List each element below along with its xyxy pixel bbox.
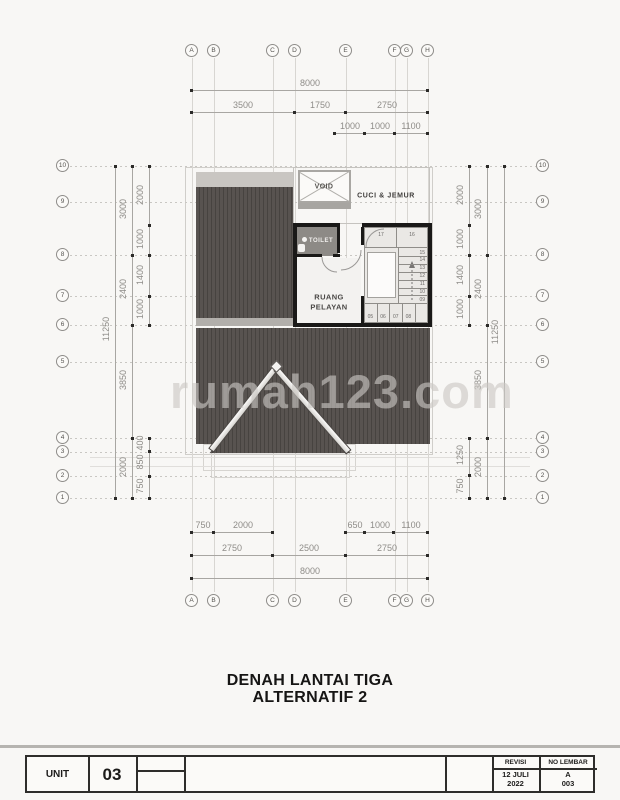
grid-bubble-top-B: B <box>207 44 220 57</box>
dim-label: 1100 <box>401 520 420 530</box>
dim-tick <box>486 254 489 257</box>
drawing-title-line2: ALTERNATIF 2 <box>0 689 620 706</box>
dim-tick <box>486 324 489 327</box>
dim-line <box>346 532 428 533</box>
grid-bubble-right-3: 3 <box>536 445 549 458</box>
dim-tick <box>468 324 471 327</box>
void-edge-strip <box>298 203 351 209</box>
dim-line <box>192 90 428 91</box>
room-label-toilet: TOILET <box>309 238 333 244</box>
dim-label: 8000 <box>300 78 320 88</box>
dim-label: 8000 <box>300 566 320 576</box>
grid-bubble-top-D: D <box>288 44 301 57</box>
room-label-void: VOID <box>315 184 334 191</box>
dim-label: 2500 <box>299 543 319 553</box>
dim-label: 1000 <box>455 287 465 331</box>
dim-label: 2750 <box>377 100 397 110</box>
stair-step-number: 09 <box>405 297 425 303</box>
dim-label: 1000 <box>370 121 390 131</box>
toilet-sink-icon <box>302 237 307 242</box>
dim-label: 2000 <box>135 173 145 217</box>
dim-line <box>335 133 428 134</box>
title-block: UNIT 03 REVISI 12 JULI 2022 NO LEMBAR A … <box>25 755 595 793</box>
dim-label: 3000 <box>118 187 128 231</box>
no-lembar-label: NO LEMBAR <box>539 759 597 766</box>
grid-bubble-left-4: 4 <box>56 431 69 444</box>
sheet-divider-rule <box>0 745 620 748</box>
grid-bubble-left-10: 10 <box>56 159 69 172</box>
dim-tick <box>271 531 274 534</box>
grid-bubble-bottom-G: G <box>400 594 413 607</box>
grid-bubble-bottom-A: A <box>185 594 198 607</box>
dim-label: 2000 <box>118 445 128 489</box>
dim-label: 650 <box>347 520 362 530</box>
grid-bubble-right-6: 6 <box>536 318 549 331</box>
dim-tick <box>148 475 151 478</box>
grid-bubble-bottom-H: H <box>421 594 434 607</box>
dim-tick <box>131 497 134 500</box>
dim-tick <box>486 497 489 500</box>
stair-line <box>365 247 427 248</box>
room-label-ruang-pelayan: PELAYAN <box>310 303 347 312</box>
grid-bubble-left-5: 5 <box>56 355 69 368</box>
dim-label: 2750 <box>377 543 397 553</box>
dim-tick <box>148 437 151 440</box>
stair-line <box>396 228 397 247</box>
dim-label: 11250 <box>101 307 111 351</box>
dim-tick <box>486 437 489 440</box>
dim-label: 11250 <box>490 310 500 354</box>
grid-bubble-top-G: G <box>400 44 413 57</box>
dim-tick <box>468 295 471 298</box>
dim-tick <box>426 531 429 534</box>
dim-line <box>469 438 470 498</box>
dim-line <box>192 555 428 556</box>
title-block-divider <box>136 770 184 772</box>
grid-bubble-bottom-E: E <box>339 594 352 607</box>
wall-toilet-door-nub <box>333 254 340 257</box>
grid-bubble-top-A: A <box>185 44 198 57</box>
dim-tick <box>131 165 134 168</box>
stair-step-number: 06 <box>377 314 390 320</box>
dim-line <box>115 166 116 498</box>
grid-bubble-right-10: 10 <box>536 159 549 172</box>
title-block-divider <box>445 757 447 791</box>
grid-bubble-left-9: 9 <box>56 195 69 208</box>
dim-line <box>149 438 150 498</box>
dim-tick <box>486 165 489 168</box>
grid-bubble-bottom-B: B <box>207 594 220 607</box>
grid-bubble-top-C: C <box>266 44 279 57</box>
dim-tick <box>148 224 151 227</box>
dim-tick <box>190 554 193 557</box>
dim-tick <box>468 497 471 500</box>
dim-tick <box>148 497 151 500</box>
dim-label: 3500 <box>233 100 253 110</box>
wall <box>293 223 297 327</box>
stair-step-number: 11 <box>405 281 425 287</box>
dim-tick <box>333 132 336 135</box>
revisi-label: REVISI <box>492 759 539 766</box>
grid-bubble-bottom-C: C <box>266 594 279 607</box>
dim-tick <box>393 132 396 135</box>
dim-line <box>192 532 273 533</box>
stair-step-number: 17 <box>373 232 389 238</box>
dim-tick <box>344 554 347 557</box>
dim-label: 1100 <box>401 121 420 131</box>
room-label-ruang-pelayan: RUANG <box>314 293 344 302</box>
dim-tick <box>468 254 471 257</box>
wall <box>293 323 432 327</box>
dim-line <box>504 166 505 498</box>
dim-line <box>192 578 428 579</box>
grid-bubble-right-2: 2 <box>536 469 549 482</box>
grid-bubble-right-7: 7 <box>536 289 549 302</box>
dim-tick <box>363 132 366 135</box>
left-roof-ridge-strip <box>196 172 293 187</box>
left-roof-eave-strip <box>196 318 293 326</box>
dim-tick <box>190 531 193 534</box>
grid-bubble-bottom-D: D <box>288 594 301 607</box>
dim-tick <box>131 437 134 440</box>
grid-bubble-left-1: 1 <box>56 491 69 504</box>
dim-label: 750 <box>135 464 145 508</box>
dim-tick <box>363 531 366 534</box>
dim-tick <box>426 554 429 557</box>
dim-label: 3000 <box>473 187 483 231</box>
grid-bubble-right-1: 1 <box>536 491 549 504</box>
title-block-divider <box>184 757 186 791</box>
dim-label: 1750 <box>310 100 330 110</box>
stair-step-number: 08 <box>402 314 415 320</box>
grid-bubble-right-5: 5 <box>536 355 549 368</box>
drawing-title-line1: DENAH LANTAI TIGA <box>0 672 620 689</box>
dim-tick <box>271 554 274 557</box>
dim-tick <box>212 531 215 534</box>
grid-bubble-top-E: E <box>339 44 352 57</box>
stair-void <box>367 252 396 298</box>
dim-label: 2000 <box>473 445 483 489</box>
dim-tick <box>426 132 429 135</box>
dim-label: 2400 <box>118 267 128 311</box>
dim-tick <box>426 577 429 580</box>
eave-outline-inner <box>211 452 350 478</box>
grid-bubble-right-8: 8 <box>536 248 549 261</box>
wall-toilet-right <box>337 226 340 253</box>
dim-line <box>149 166 150 325</box>
dim-label: 1000 <box>135 287 145 331</box>
wall <box>293 223 340 227</box>
stair-line <box>415 303 416 322</box>
dim-tick <box>148 295 151 298</box>
dim-tick <box>426 111 429 114</box>
dim-label: 1000 <box>370 520 390 530</box>
dim-label: 2750 <box>222 543 242 553</box>
dim-label: 3850 <box>118 358 128 402</box>
grid-bubble-left-6: 6 <box>56 318 69 331</box>
dim-line <box>132 166 133 498</box>
stair-step-number: 10 <box>405 289 425 295</box>
dim-tick <box>468 474 471 477</box>
wall-stair-top <box>361 227 364 245</box>
stair-step-number: 16 <box>404 232 420 238</box>
dim-tick <box>468 165 471 168</box>
revisi-date: 12 JULI 2022 <box>492 771 539 788</box>
dim-tick <box>190 111 193 114</box>
stair-step-number: 15 <box>405 250 425 256</box>
dim-tick <box>190 577 193 580</box>
dim-tick <box>344 531 347 534</box>
room-label-cuci-jemur: CUCI & JEMUR <box>357 193 415 200</box>
watermark: rumah123.com <box>170 364 514 419</box>
dim-tick <box>503 497 506 500</box>
stair-step-number: 05 <box>364 314 377 320</box>
floor-plan-sheet: VOID CUCI & JEMUR TOILET RUANG PELAYAN r… <box>0 0 620 800</box>
dim-label: 2000 <box>455 173 465 217</box>
dim-tick <box>114 497 117 500</box>
unit-label: UNIT <box>27 769 88 780</box>
dim-tick <box>190 89 193 92</box>
stair-step-number: 12 <box>405 273 425 279</box>
grid-bubble-right-4: 4 <box>536 431 549 444</box>
dim-tick <box>468 224 471 227</box>
dim-label: 2000 <box>233 520 253 530</box>
dim-label: 750 <box>195 520 210 530</box>
dim-tick <box>293 111 296 114</box>
grid-bubble-left-7: 7 <box>56 289 69 302</box>
dim-tick <box>148 165 151 168</box>
dim-line <box>469 166 470 325</box>
stair-step-number: 13 <box>405 265 425 271</box>
drawing-title: DENAH LANTAI TIGA ALTERNATIF 2 <box>0 672 620 706</box>
unit-number: 03 <box>88 765 136 785</box>
no-lembar-value: A 003 <box>539 771 597 788</box>
stair-step-number: 07 <box>389 314 402 320</box>
dim-label: 1000 <box>340 121 360 131</box>
dim-tick <box>148 450 151 453</box>
grid-bubble-right-9: 9 <box>536 195 549 208</box>
wall <box>428 223 432 327</box>
dim-line <box>487 166 488 498</box>
dim-tick <box>148 324 151 327</box>
dim-tick <box>131 254 134 257</box>
toilet-wc-icon <box>298 244 305 252</box>
revisi-date-line2: 2022 <box>492 780 539 789</box>
left-roof <box>196 187 293 318</box>
wall-toilet-bottom <box>296 254 322 257</box>
stair-line <box>365 303 427 304</box>
dim-line <box>192 112 428 113</box>
dim-tick <box>344 111 347 114</box>
wall <box>362 223 432 227</box>
dim-tick <box>114 165 117 168</box>
grid-bubble-left-8: 8 <box>56 248 69 261</box>
dim-tick <box>148 254 151 257</box>
grid-bubble-top-H: H <box>421 44 434 57</box>
dim-tick <box>503 165 506 168</box>
dim-tick <box>426 89 429 92</box>
grid-bubble-left-2: 2 <box>56 469 69 482</box>
stair-step-number: 14 <box>405 257 425 263</box>
dim-label: 750 <box>455 464 465 508</box>
no-lembar-line2: 003 <box>539 780 597 789</box>
dim-label: 2400 <box>473 267 483 311</box>
dim-tick <box>392 531 395 534</box>
title-block-divider <box>136 757 138 791</box>
dim-tick <box>131 324 134 327</box>
grid-bubble-left-3: 3 <box>56 445 69 458</box>
servant-room-floor <box>297 258 361 323</box>
dim-tick <box>468 437 471 440</box>
